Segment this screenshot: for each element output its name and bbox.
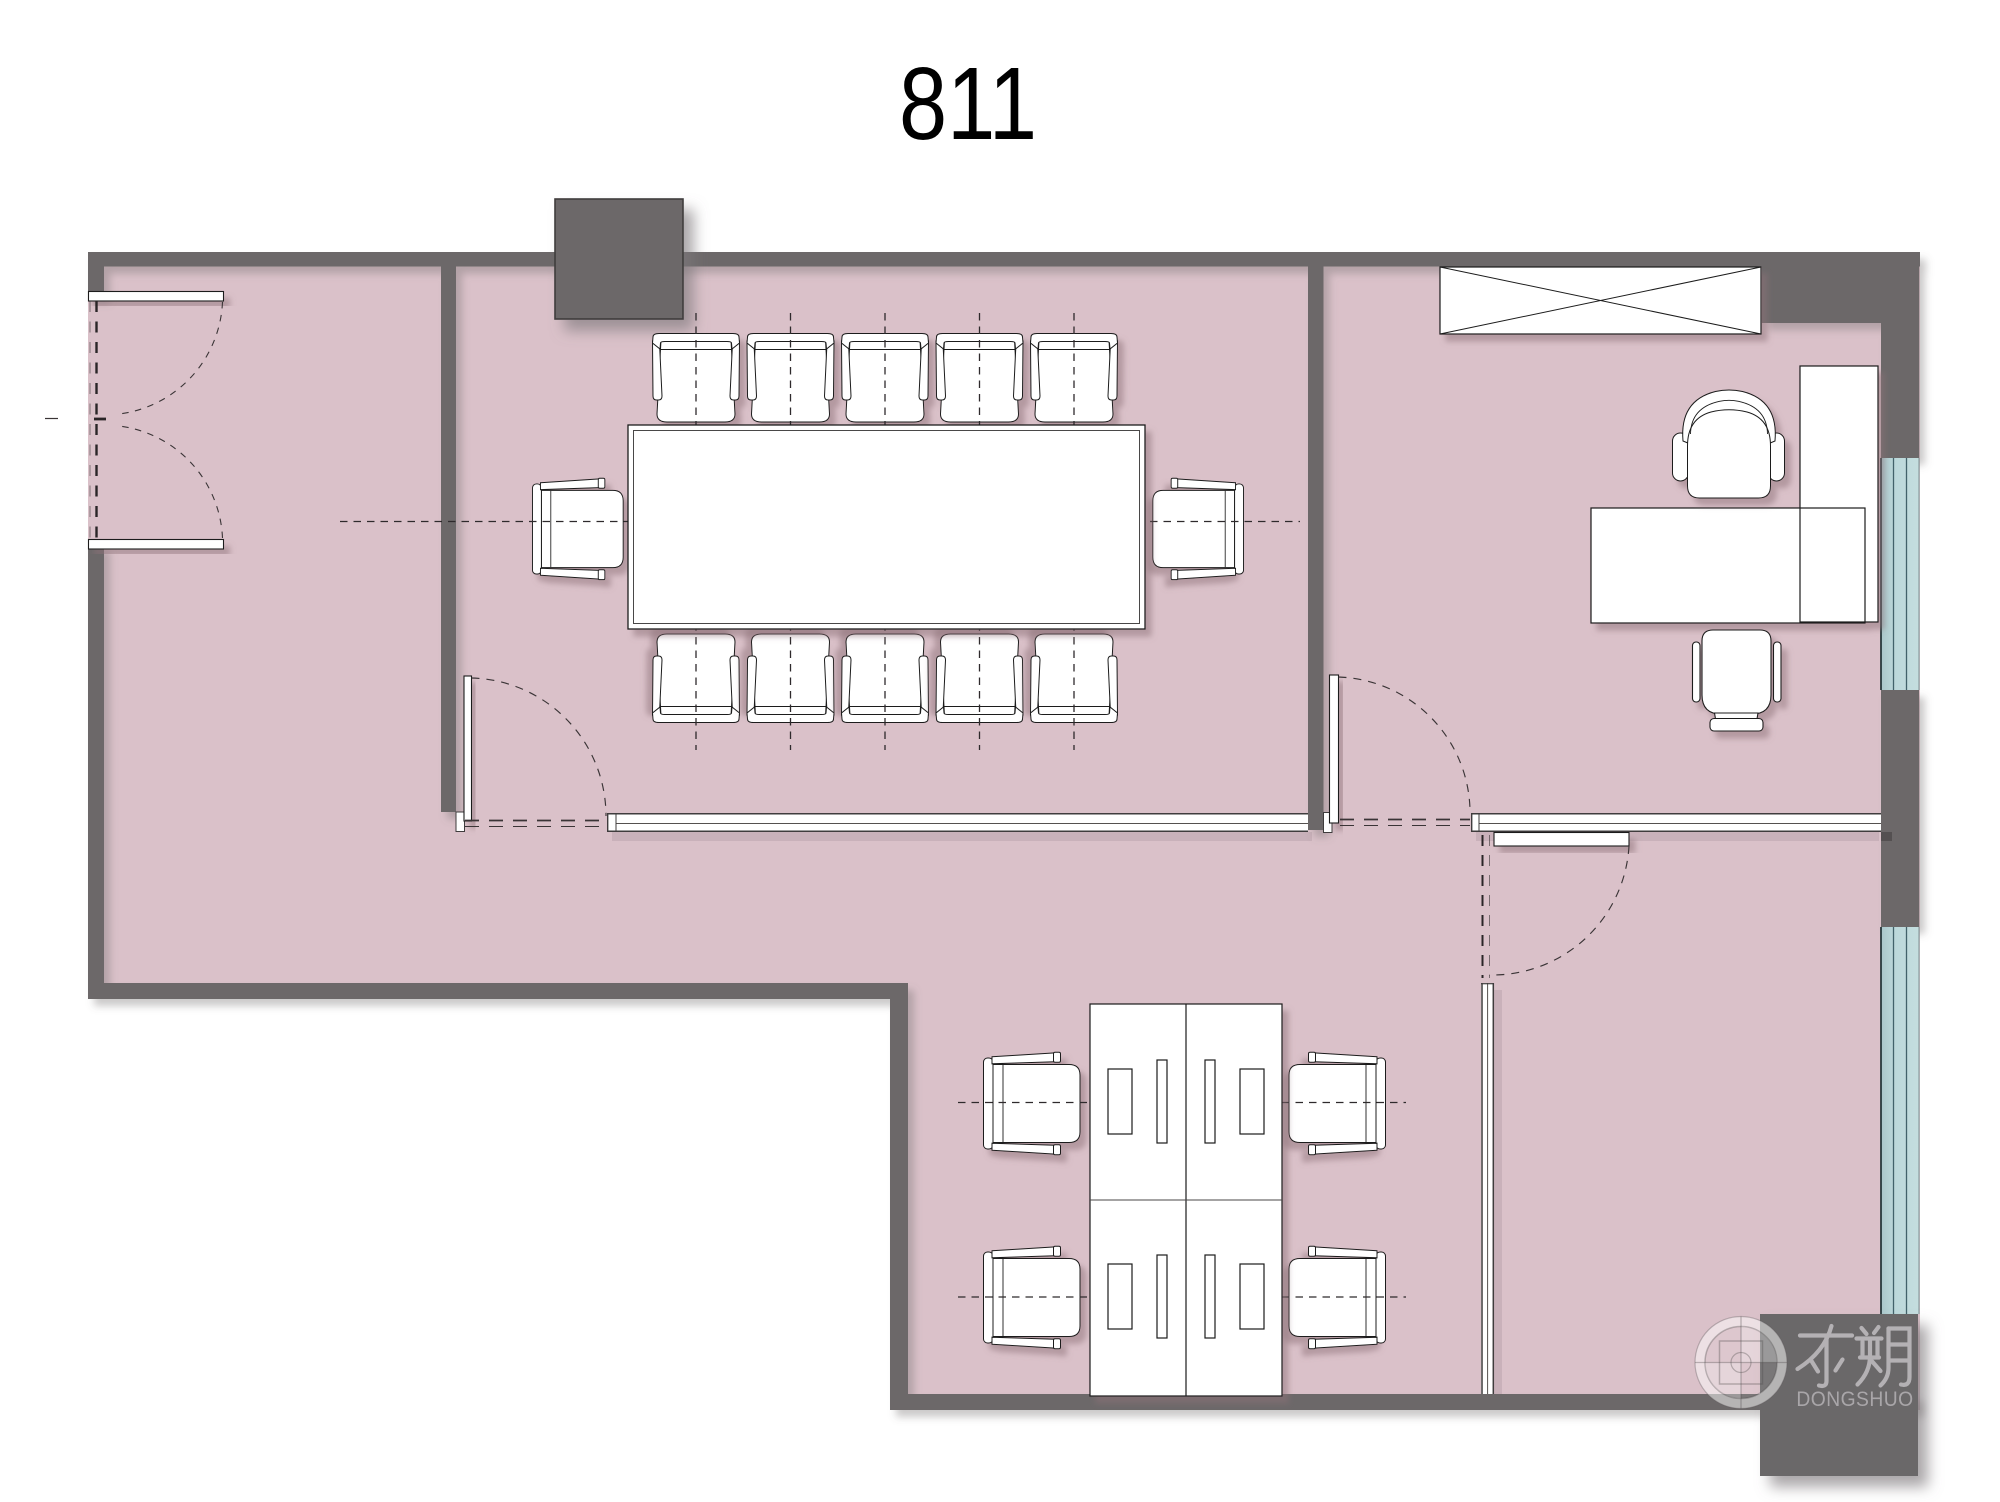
svg-text:DONGSHUO: DONGSHUO bbox=[1796, 1388, 1913, 1411]
svg-text:811: 811 bbox=[899, 47, 1037, 162]
